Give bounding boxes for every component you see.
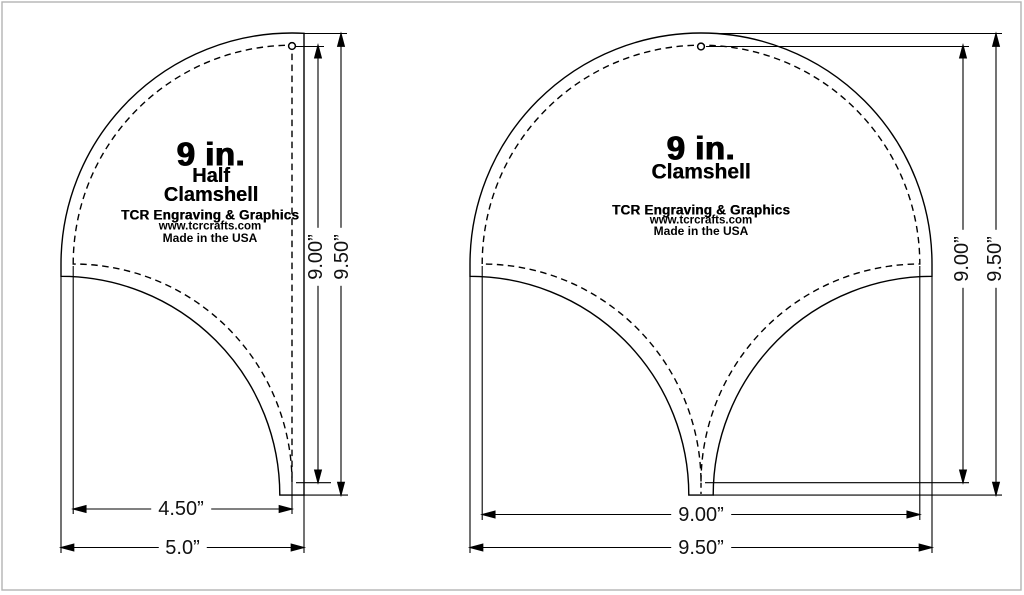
full-hang-hole-icon	[698, 43, 705, 50]
half-name-line2: Clamshell	[164, 185, 258, 205]
full-name-line1: Clamshell	[651, 162, 750, 183]
full-cut-line	[470, 33, 932, 495]
half-width-finished-dimension: 4.50”	[151, 498, 211, 520]
half-width-total-dimension: 5.0”	[158, 537, 206, 559]
half-hang-hole-icon	[289, 43, 296, 50]
half-seam-line	[73, 45, 292, 483]
full-seam-line	[482, 45, 920, 483]
half-height-total-dimension: 9.50”	[331, 228, 353, 286]
full-clamshell-template	[470, 33, 932, 495]
half-cut-line	[61, 33, 304, 495]
half-clamshell-template	[61, 33, 304, 495]
full-width-total-dimension: 9.50”	[671, 537, 731, 559]
full-width-finished-dimension: 9.00”	[671, 504, 731, 526]
drawing-canvas: 9 in. Half Clamshell TCR Engraving & Gra…	[0, 0, 1024, 595]
full-height-finished-dimension: 9.00”	[951, 230, 973, 288]
half-height-finished-dimension: 9.00”	[305, 228, 327, 286]
half-dimension-lines	[61, 34, 348, 554]
full-dimension-lines	[470, 34, 1002, 554]
half-name-line1: Half	[192, 166, 230, 186]
half-made-in-text: Made in the USA	[163, 232, 258, 244]
full-height-total-dimension: 9.50”	[984, 230, 1006, 288]
full-made-in-text: Made in the USA	[654, 225, 749, 237]
